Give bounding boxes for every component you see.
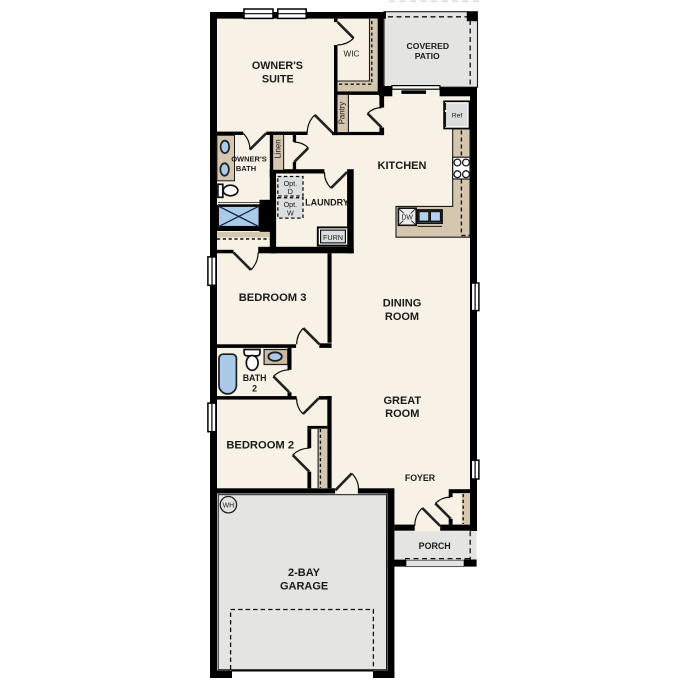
svg-text:ROOM: ROOM [385, 408, 419, 420]
svg-text:DW: DW [401, 215, 413, 222]
svg-text:GREAT: GREAT [383, 395, 421, 407]
svg-text:Pantry: Pantry [338, 102, 347, 125]
svg-text:Linen: Linen [274, 139, 283, 158]
svg-text:WH: WH [223, 502, 235, 509]
svg-text:FOYER: FOYER [405, 473, 436, 483]
svg-text:2-BAY: 2-BAY [288, 567, 321, 579]
svg-text:Ref: Ref [452, 112, 463, 119]
svg-text:OWNER'S: OWNER'S [231, 154, 267, 163]
svg-text:WIC: WIC [344, 50, 360, 59]
svg-text:PORCH: PORCH [419, 541, 451, 551]
svg-text:D: D [288, 187, 293, 196]
svg-text:BEDROOM 3: BEDROOM 3 [239, 292, 307, 304]
svg-text:FURN: FURN [323, 233, 343, 242]
svg-text:COVERED: COVERED [407, 41, 450, 51]
svg-text:BATH: BATH [236, 164, 256, 173]
svg-text:GARAGE: GARAGE [280, 581, 328, 593]
svg-text:LAUNDRY: LAUNDRY [305, 198, 349, 208]
svg-text:PATIO: PATIO [415, 51, 440, 61]
svg-text:W: W [287, 208, 294, 217]
svg-text:2: 2 [252, 383, 257, 393]
svg-text:DINING: DINING [383, 297, 422, 309]
svg-text:OWNER'S: OWNER'S [252, 60, 303, 72]
svg-text:ROOM: ROOM [385, 311, 419, 323]
svg-text:KITCHEN: KITCHEN [378, 160, 427, 172]
svg-text:SUITE: SUITE [262, 74, 294, 86]
svg-text:BATH: BATH [243, 373, 267, 383]
svg-text:BEDROOM 2: BEDROOM 2 [226, 439, 294, 451]
